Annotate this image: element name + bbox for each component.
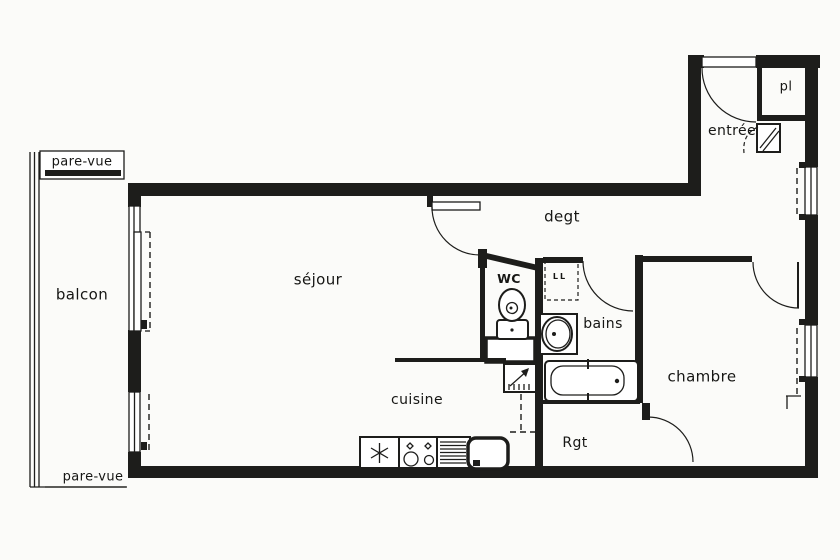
room-label-degt: degt: [544, 210, 580, 225]
sink-icon: [468, 438, 508, 469]
toilet-icon: [497, 289, 528, 339]
door-leaf: [702, 57, 756, 67]
balcony-window: [129, 392, 149, 452]
bathtub-icon: [545, 359, 638, 403]
washbasin-icon: [540, 314, 577, 354]
pare-vue-bottom-label: pare-vue: [63, 471, 124, 484]
stove-icon: [399, 437, 437, 468]
room-label-wc: WC: [497, 273, 521, 286]
floor-plan: pare-vue balcon pare-vue séjour degt WC …: [0, 0, 840, 560]
room-label-cuisine: cuisine: [391, 393, 443, 407]
fridge-icon: [360, 437, 399, 468]
window-right-upper: [797, 162, 817, 220]
room-label-entree: entrée: [708, 124, 756, 138]
balcony-railing: [30, 152, 127, 487]
balcony-sliding-door: [129, 206, 150, 331]
room-label-bains: bains: [583, 317, 623, 331]
sejour-door: [432, 202, 480, 255]
water-heater-icon: [504, 364, 536, 392]
room-label-chambre: chambre: [668, 370, 737, 385]
room-label-balcon: balcon: [56, 288, 108, 303]
room-label-pl: pl: [780, 81, 793, 94]
floor-plan-drawing: [0, 0, 840, 560]
washing-machine-box: [545, 262, 578, 300]
rgt-door: [648, 417, 693, 462]
door-leaf: [432, 202, 480, 210]
room-label-rgt: Rgt: [562, 436, 587, 450]
entry-door: [702, 57, 756, 122]
washing-machine-label: LL: [553, 273, 567, 281]
exterior-walls: [128, 55, 820, 478]
placard-wall: [757, 66, 762, 121]
room-label-sejour: séjour: [294, 273, 342, 288]
drainboard-icon: [437, 437, 470, 468]
floor-plan-page: pare-vue balcon pare-vue séjour degt WC …: [0, 0, 840, 560]
chambre-door: [753, 262, 799, 308]
bains-door: [583, 261, 633, 311]
pare-vue-top-label: pare-vue: [52, 156, 113, 169]
kitchen-divider-wall: [395, 358, 506, 362]
